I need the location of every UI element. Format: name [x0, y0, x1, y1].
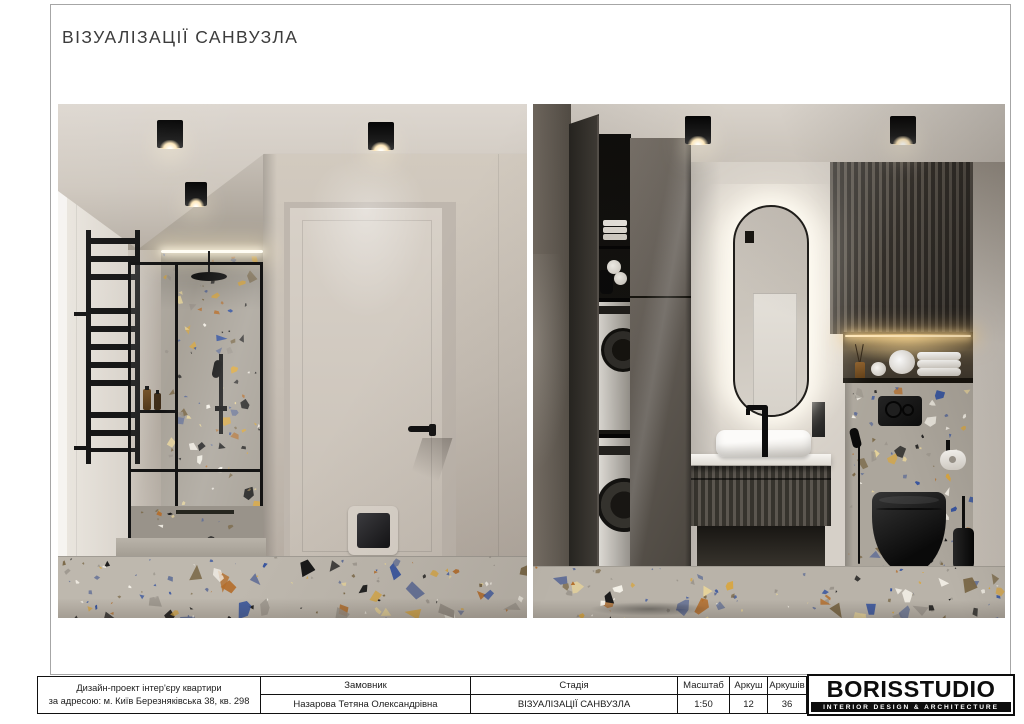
ambient-overlay — [58, 104, 527, 618]
title-block: Дизайн-проект інтер'єру квартири за адре… — [37, 676, 1015, 714]
render-shower-room — [58, 104, 527, 618]
ambient-overlay — [533, 104, 1005, 618]
client-value: Назарова Тетяна Олександрівна — [261, 695, 471, 713]
stage-label: Стадія — [471, 677, 678, 695]
stage-value: ВІЗУАЛІЗАЦІЇ САНВУЗЛА — [471, 695, 678, 713]
sheet-value: 12 — [730, 695, 768, 713]
studio-logo-tagline: INTERIOR DESIGN & ARCHITECTURE — [811, 702, 1011, 712]
page-title: ВІЗУАЛІЗАЦІЇ САНВУЗЛА — [62, 27, 298, 48]
design-sheet: ВІЗУАЛІЗАЦІЇ САНВУЗЛА — [0, 0, 1024, 724]
sheets-total-label: Аркушів — [768, 677, 807, 695]
sheets-total-value: 36 — [768, 695, 807, 713]
project-line2: за адресою: м. Київ Березняківська 38, к… — [49, 695, 250, 708]
project-line1: Дизайн-проект інтер'єру квартири — [76, 682, 221, 695]
project-description-cell: Дизайн-проект інтер'єру квартири за адре… — [38, 677, 261, 713]
scale-value: 1:50 — [678, 695, 730, 713]
render-vanity-wc — [533, 104, 1005, 618]
sheet-label: Аркуш — [730, 677, 768, 695]
client-label: Замовник — [261, 677, 471, 695]
studio-logo-name: BORISSTUDIO — [827, 678, 996, 700]
studio-logo: BORISSTUDIO INTERIOR DESIGN & ARCHITECTU… — [807, 674, 1015, 716]
scale-label: Масштаб — [678, 677, 730, 695]
